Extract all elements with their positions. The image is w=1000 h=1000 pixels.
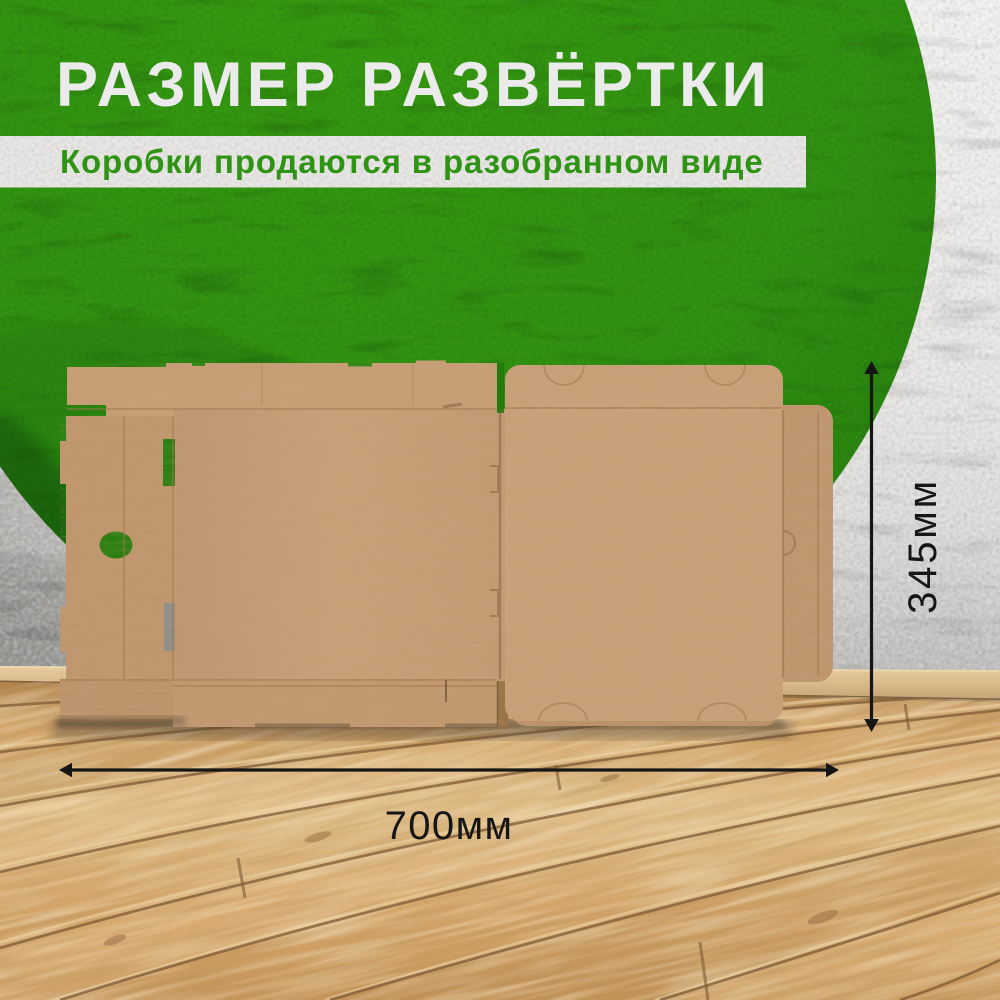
svg-text:РАЗМЕР РАЗВЁРТКИ: РАЗМЕР РАЗВЁРТКИ: [56, 50, 771, 120]
svg-text:700мм: 700мм: [385, 804, 514, 848]
svg-text:Коробки продаются в разобранно: Коробки продаются в разобранном виде: [60, 143, 764, 180]
svg-text:345мм: 345мм: [901, 478, 945, 614]
